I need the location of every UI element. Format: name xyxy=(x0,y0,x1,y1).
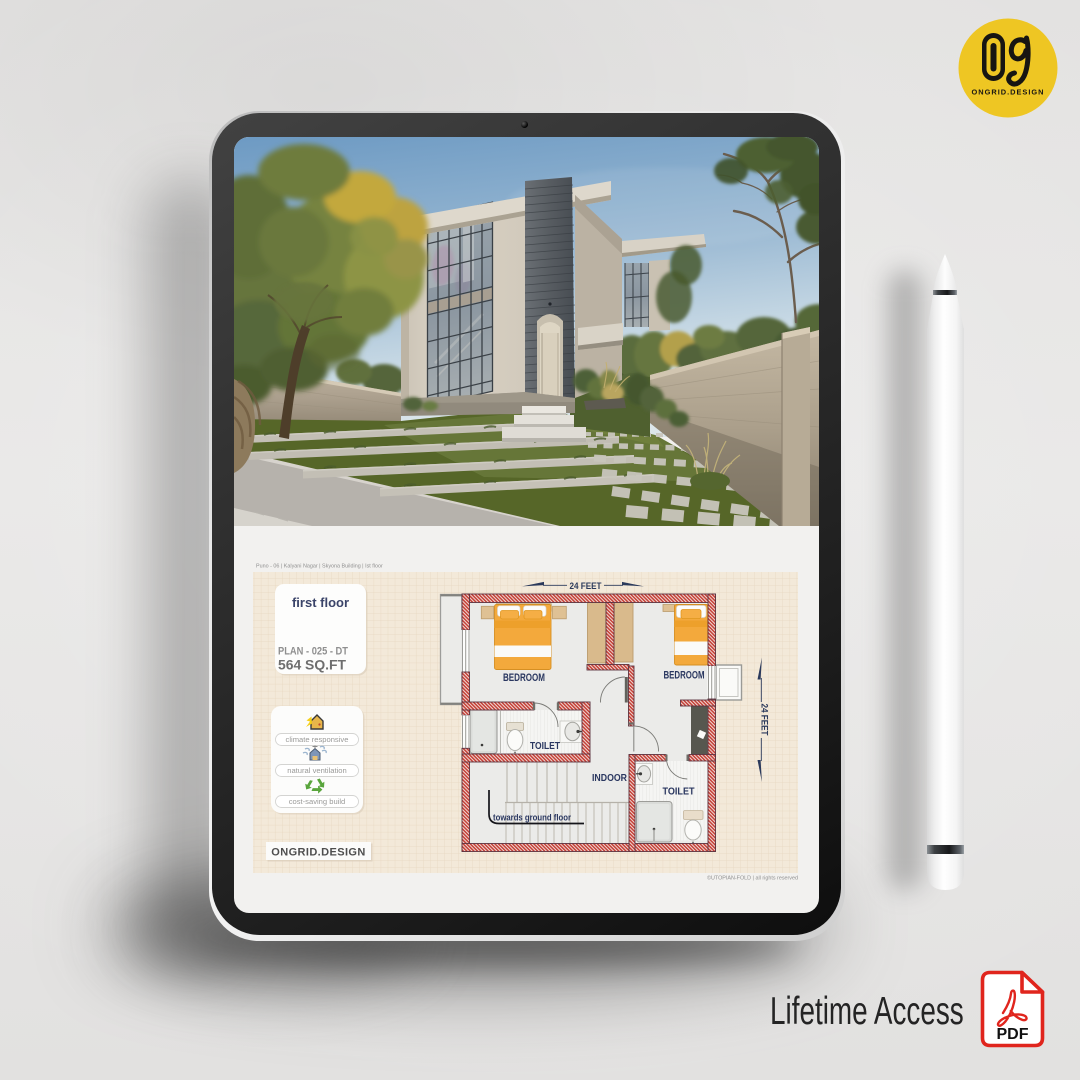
svg-text:564 SQ.FT: 564 SQ.FT xyxy=(278,658,347,673)
svg-text:ONGRID.DESIGN: ONGRID.DESIGN xyxy=(972,88,1045,97)
svg-text:TOILET: TOILET xyxy=(530,740,560,752)
svg-text:BEDROOM: BEDROOM xyxy=(664,670,705,682)
svg-text:PLAN - 025 - DT: PLAN - 025 - DT xyxy=(278,646,348,658)
svg-text:climate responsive: climate responsive xyxy=(286,735,349,744)
svg-text:Puno - 06 | Kalyani Nagar | Sk: Puno - 06 | Kalyani Nagar | Skyona Build… xyxy=(256,564,383,570)
svg-text:towards ground floor: towards ground floor xyxy=(493,813,572,823)
svg-text:BEDROOM: BEDROOM xyxy=(503,672,545,684)
svg-text:first floor: first floor xyxy=(292,595,349,610)
svg-text:natural ventilation: natural ventilation xyxy=(287,766,347,775)
svg-text:ONGRID.DESIGN: ONGRID.DESIGN xyxy=(271,847,365,859)
svg-text:INDOOR: INDOOR xyxy=(592,772,627,784)
svg-text:cost-saving build: cost-saving build xyxy=(289,797,346,806)
svg-text:TOILET: TOILET xyxy=(663,786,696,798)
svg-text:24 FEET: 24 FEET xyxy=(759,704,770,736)
svg-text:©UTOPIAN-FOLD | all rights res: ©UTOPIAN-FOLD | all rights reserved xyxy=(707,875,798,882)
svg-text:24 FEET: 24 FEET xyxy=(570,581,602,592)
svg-text:PDF: PDF xyxy=(997,1026,1029,1043)
